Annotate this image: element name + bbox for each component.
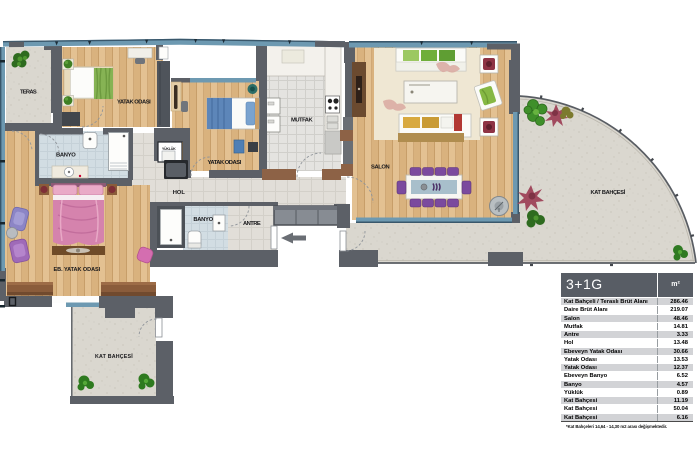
svg-text:YATAK ODASI: YATAK ODASI xyxy=(208,160,242,166)
svg-text:ANTRE: ANTRE xyxy=(243,221,261,227)
svg-text:KAT BAHÇESİ: KAT BAHÇESİ xyxy=(591,189,626,196)
svg-text:MUTFAK: MUTFAK xyxy=(291,118,314,124)
svg-text:SALON: SALON xyxy=(371,165,390,171)
svg-text:KAT BAHÇESİ: KAT BAHÇESİ xyxy=(95,353,133,360)
svg-text:BANYO: BANYO xyxy=(193,217,213,223)
svg-text:YÜKLÜK: YÜKLÜK xyxy=(162,146,176,151)
svg-text:HOL: HOL xyxy=(173,190,186,196)
svg-text:TERAS: TERAS xyxy=(20,90,37,96)
svg-text:YATAK ODASI: YATAK ODASI xyxy=(117,100,151,106)
svg-text:EB. YATAK ODASI: EB. YATAK ODASI xyxy=(54,267,101,273)
svg-text:BANYO: BANYO xyxy=(56,153,76,159)
